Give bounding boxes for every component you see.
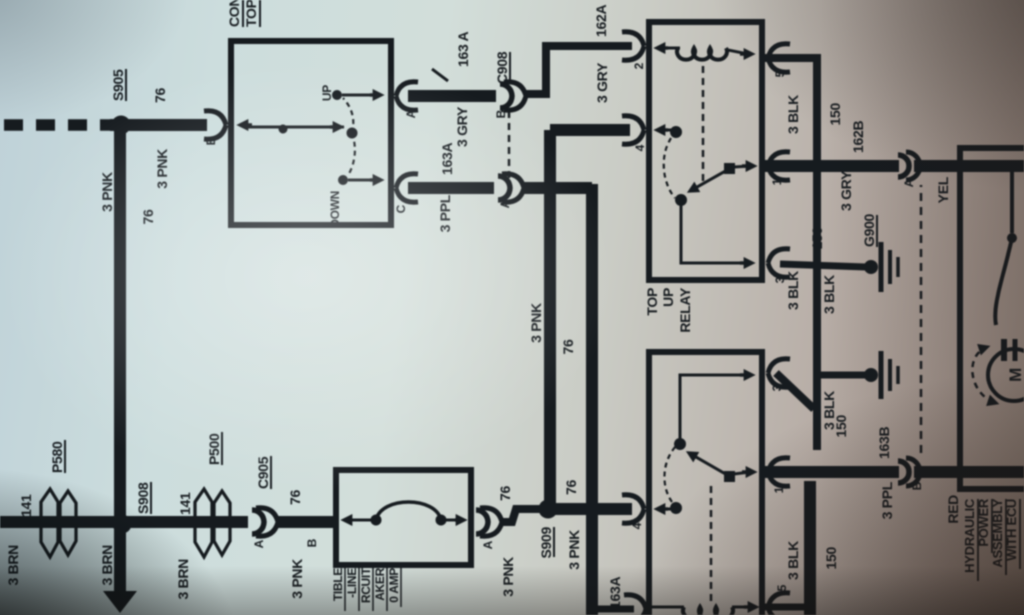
svg-text:150: 150	[833, 414, 849, 437]
svg-text:3 BRN: 3 BRN	[99, 545, 115, 586]
svg-text:RCUIT: RCUIT	[359, 567, 373, 603]
svg-text:3 BLK: 3 BLK	[785, 541, 801, 580]
svg-text:TIBLE: TIBLE	[331, 568, 345, 601]
svg-text:3 PPL: 3 PPL	[437, 194, 453, 232]
svg-text:76: 76	[497, 486, 513, 501]
svg-text:TOP: TOP	[644, 288, 660, 316]
svg-text:A: A	[481, 540, 495, 549]
svg-text:3 BRN: 3 BRN	[175, 559, 191, 600]
svg-text:0 AMP: 0 AMP	[387, 568, 401, 603]
svg-text:76: 76	[140, 209, 156, 224]
svg-text:5: 5	[775, 584, 789, 591]
svg-text:3 BLK: 3 BLK	[785, 95, 801, 134]
svg-text:163A: 163A	[607, 577, 623, 609]
svg-text:150: 150	[827, 102, 843, 125]
svg-text:5: 5	[773, 70, 787, 77]
svg-text:UP: UP	[320, 85, 334, 101]
svg-text:C908: C908	[494, 51, 510, 84]
svg-text:76: 76	[152, 88, 168, 103]
svg-text:M: M	[1006, 368, 1024, 382]
svg-text:A: A	[252, 539, 266, 548]
svg-text:DOWN: DOWN	[328, 191, 342, 228]
svg-text:162A: 162A	[593, 5, 609, 37]
svg-text:POWER: POWER	[976, 498, 991, 547]
svg-text:ASSEMBLY: ASSEMBLY	[990, 498, 1005, 567]
svg-text:1: 1	[772, 486, 786, 493]
svg-text:B: B	[305, 538, 319, 547]
svg-text:3 BLK: 3 BLK	[821, 275, 837, 314]
svg-text:RED: RED	[945, 495, 961, 524]
svg-text:S909: S909	[538, 526, 554, 558]
svg-text:S905: S905	[110, 69, 126, 101]
svg-text:G900: G900	[861, 213, 877, 247]
svg-text:3 GRY: 3 GRY	[838, 170, 854, 211]
svg-text:B: B	[910, 481, 924, 490]
svg-text:HYDRAULIC: HYDRAULIC	[962, 498, 977, 573]
svg-text:1: 1	[770, 178, 784, 185]
svg-text:4: 4	[630, 522, 644, 529]
svg-text:3 PNK: 3 PNK	[500, 557, 516, 597]
svg-text:3 PNK: 3 PNK	[99, 172, 115, 212]
svg-text:2: 2	[632, 62, 646, 69]
svg-text:162B: 162B	[850, 121, 866, 153]
svg-text:A: A	[902, 178, 916, 187]
svg-text:AKER: AKER	[373, 567, 387, 600]
svg-text:163B: 163B	[876, 427, 892, 459]
svg-text:YEL: YEL	[935, 176, 951, 203]
svg-text:C905: C905	[255, 456, 271, 489]
svg-text:S908: S908	[135, 482, 151, 514]
svg-text:UP: UP	[660, 288, 676, 307]
svg-text:141: 141	[18, 494, 34, 517]
svg-text:P580: P580	[49, 441, 65, 473]
svg-text:3 GRY: 3 GRY	[594, 62, 610, 103]
svg-text:3 BLK: 3 BLK	[785, 271, 801, 310]
svg-text:RELAY: RELAY	[677, 287, 693, 333]
svg-text:3 PPL: 3 PPL	[879, 481, 895, 519]
svg-text:163 A: 163 A	[455, 31, 471, 67]
svg-text:3 PNK: 3 PNK	[528, 303, 544, 343]
svg-text:A: A	[498, 199, 512, 208]
svg-text:B: B	[204, 136, 218, 145]
svg-text:CONV: CONV	[226, 0, 242, 27]
svg-text:141: 141	[177, 492, 193, 515]
svg-text:A: A	[404, 109, 418, 118]
svg-text:3 PNK: 3 PNK	[154, 149, 170, 189]
svg-text:150: 150	[823, 546, 839, 569]
svg-text:-LINE: -LINE	[345, 568, 359, 598]
svg-text:WITH ECU: WITH ECU	[1004, 499, 1019, 561]
svg-text:P500: P500	[206, 433, 222, 465]
svg-text:B: B	[494, 109, 508, 118]
svg-text:76: 76	[287, 490, 303, 505]
svg-text:76: 76	[563, 480, 579, 495]
svg-text:76: 76	[560, 339, 576, 354]
svg-text:3 PNK: 3 PNK	[566, 530, 582, 570]
svg-text:163A: 163A	[439, 143, 455, 175]
svg-text:TOP S: TOP S	[243, 0, 259, 27]
svg-text:3: 3	[770, 384, 784, 391]
svg-text:150: 150	[809, 226, 825, 249]
svg-text:4: 4	[633, 144, 647, 151]
svg-text:3 BRN: 3 BRN	[5, 545, 21, 586]
svg-text:C: C	[394, 204, 408, 213]
svg-text:3 PNK: 3 PNK	[289, 559, 305, 599]
svg-text:3 GRY: 3 GRY	[454, 106, 470, 147]
